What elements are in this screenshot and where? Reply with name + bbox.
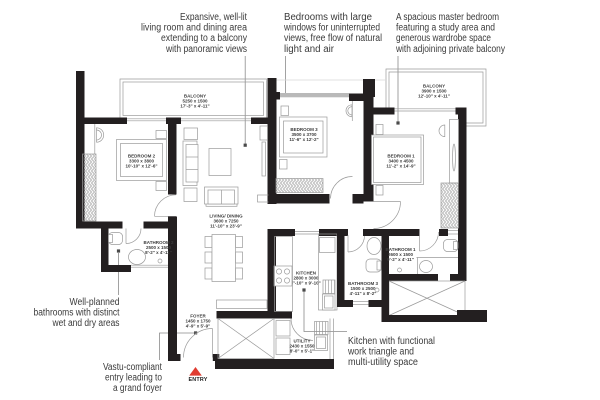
svg-text:Vastu-compliant: Vastu-compliant	[103, 362, 162, 373]
svg-text:Bedrooms with large: Bedrooms with large	[284, 12, 372, 23]
svg-text:multi-utility space: multi-utility space	[348, 357, 418, 368]
svg-text:9'-2" x 4'-11": 9'-2" x 4'-11"	[387, 257, 414, 262]
svg-text:7'-10" x 9'-10": 7'-10" x 9'-10"	[291, 281, 320, 286]
svg-text:Expansive, well-lit: Expansive, well-lit	[180, 12, 247, 23]
svg-text:ENTRY: ENTRY	[188, 377, 207, 383]
svg-text:Well-planned: Well-planned	[70, 297, 120, 308]
svg-text:entry leading to: entry leading to	[105, 373, 162, 384]
svg-text:living room and dining area: living room and dining area	[141, 23, 247, 34]
svg-text:light and air: light and air	[284, 44, 335, 55]
svg-text:Kitchen with functional: Kitchen with functional	[348, 336, 435, 347]
svg-text:17'-3" x 4'-11": 17'-3" x 4'-11"	[180, 104, 209, 109]
svg-text:extending to a balcony: extending to a balcony	[161, 33, 247, 44]
svg-text:4'-11" x 8'-2": 4'-11" x 8'-2"	[350, 291, 377, 296]
svg-text:bathrooms with distinct: bathrooms with distinct	[34, 308, 120, 319]
svg-text:10'-10" x 12'-6": 10'-10" x 12'-6"	[126, 164, 158, 169]
svg-text:8'-0" x 5'-1": 8'-0" x 5'-1"	[290, 349, 314, 354]
svg-text:wet and dry areas: wet and dry areas	[52, 318, 120, 329]
svg-text:generous wardrobe space: generous wardrobe space	[396, 33, 491, 44]
svg-text:12'-10" x 4'-11": 12'-10" x 4'-11"	[418, 93, 450, 98]
svg-text:11'-10" x 23'-9": 11'-10" x 23'-9"	[210, 224, 242, 229]
svg-text:4'-9" x 5'-9": 4'-9" x 5'-9"	[186, 324, 210, 329]
svg-text:11'-6" x 12'-2": 11'-6" x 12'-2"	[289, 137, 318, 142]
svg-text:a grand foyer: a grand foyer	[113, 383, 163, 394]
svg-text:A spacious master bedroom: A spacious master bedroom	[396, 12, 499, 23]
svg-text:views, free flow of natural: views, free flow of natural	[284, 33, 382, 44]
svg-text:11'-2" x 14'-9": 11'-2" x 14'-9"	[386, 164, 415, 169]
svg-text:windows for uninterrupted: windows for uninterrupted	[283, 23, 380, 34]
svg-text:work triangle and: work triangle and	[347, 347, 414, 358]
svg-text:8'-2" x 4'-11": 8'-2" x 4'-11"	[145, 250, 172, 255]
svg-text:featuring a study area and: featuring a study area and	[396, 23, 495, 34]
svg-text:with panoramic views: with panoramic views	[165, 44, 247, 55]
svg-text:with adjoining private balcony: with adjoining private balcony	[395, 44, 505, 55]
